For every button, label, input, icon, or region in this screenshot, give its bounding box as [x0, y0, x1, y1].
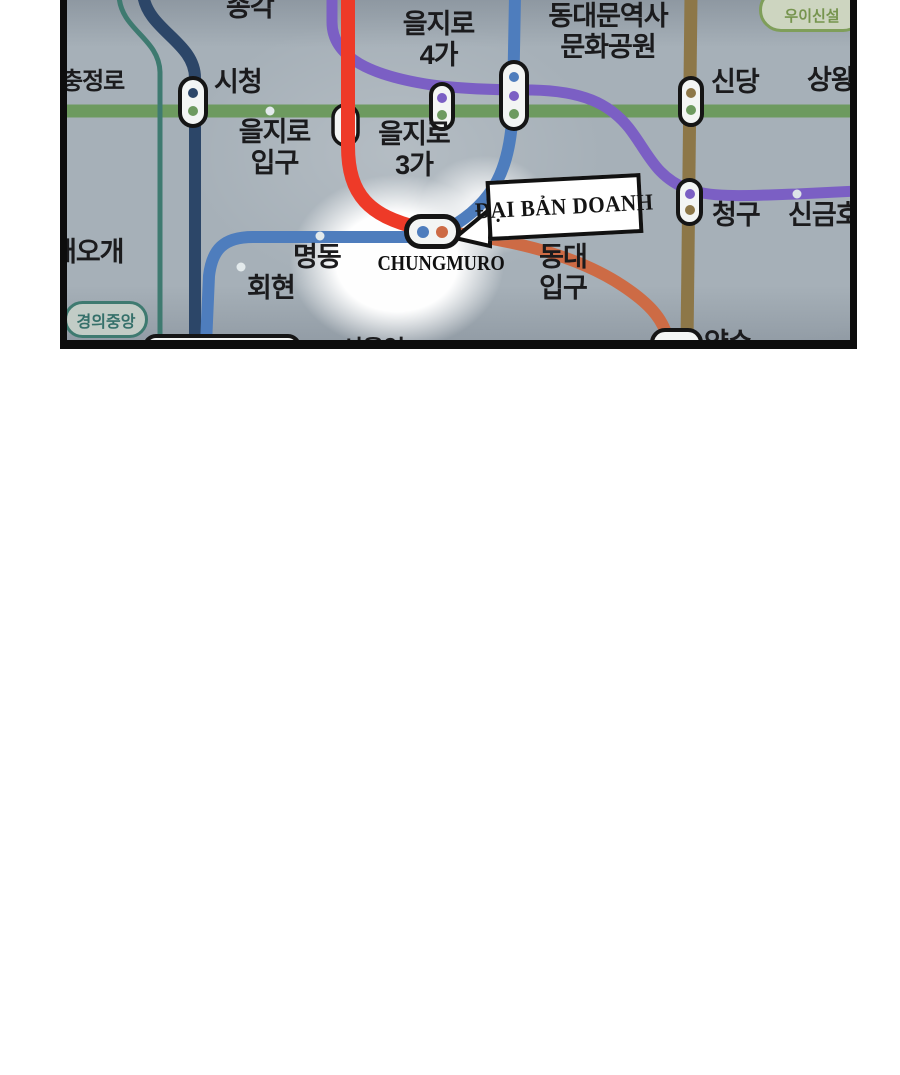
headquarters-callout-text: ĐẠI BẢN DOANH: [475, 189, 655, 224]
station-capsule-sindang: [678, 76, 704, 127]
station-capsule-yaksu: [650, 328, 703, 349]
gyeongui-jungang-line-badge: 경의중앙: [64, 301, 148, 338]
station-label-yaksu: 약수: [704, 328, 752, 349]
station-capsule-city-hall: [178, 76, 208, 128]
label-line: 입구: [227, 148, 322, 179]
line3-dot: [436, 226, 448, 238]
label-line: 을지로: [227, 117, 322, 148]
label-line: 을지로: [391, 9, 486, 40]
station-label-city-hall: 시청: [214, 67, 262, 98]
station-capsule-cheonggu: [676, 178, 703, 226]
station-label-cheonggu: 청구: [712, 200, 760, 231]
label-line: 3가: [369, 150, 459, 181]
gyeongui-jungang-line: [119, 0, 160, 340]
line4-dot: [509, 72, 519, 82]
subway-map-panel: 우이신설 경의중앙 종각 충정로 시청 을지로 입구 을지로 3가 을지로 4가…: [60, 0, 857, 349]
line6-dot: [686, 88, 696, 98]
station-label-singeumho: 신금호: [788, 200, 857, 231]
label-line: 동대: [530, 242, 596, 273]
line2-dot: [509, 109, 519, 119]
station-label-ddm-history-culture-park: 동대문역사 문화공원: [524, 1, 692, 63]
station-label-jonggak: 종각: [226, 0, 274, 23]
station-label-sangwangsimni: 상왕: [807, 65, 855, 96]
line2-dot: [188, 106, 198, 116]
line6-dot: [685, 205, 695, 215]
label-line: 문화공원: [524, 32, 692, 63]
station-label-sindang: 신당: [711, 67, 759, 98]
station-label-chungmuro-en: CHUNGMURO: [377, 251, 486, 276]
station-dot-euljiro-ipgu: [266, 107, 275, 116]
label-line: 4가: [391, 40, 486, 71]
station-capsule-chungmuro: [404, 214, 461, 249]
label-line: 동대문역사: [524, 1, 692, 32]
station-label-seoul-station: 서울역: [341, 334, 404, 349]
station-dot-hoehyeon: [237, 263, 246, 272]
line5-dot: [509, 91, 519, 101]
station-dot-line5-east: [793, 190, 802, 199]
line5-dot: [685, 189, 695, 199]
station-label-hoehyeon: 회현: [247, 273, 295, 304]
station-label-euljiro-4ga: 을지로 4가: [391, 9, 486, 71]
station-label-chungjeongno: 충정로: [61, 66, 124, 97]
station-label-euljiro-3ga: 을지로 3가: [369, 119, 459, 181]
ui-sinseol-line-badge: 우이신설: [759, 0, 857, 32]
line5-dot: [437, 93, 447, 103]
station-label-dongguk-univ: 동대 입구: [530, 242, 596, 304]
line2-dot: [686, 105, 696, 115]
headquarters-callout: ĐẠI BẢN DOANH: [486, 173, 644, 241]
station-dot-myeongdong: [316, 232, 325, 241]
label-line: 을지로: [369, 119, 459, 150]
line4-dot: [417, 226, 429, 238]
line1-dot: [188, 88, 198, 98]
label-line: 입구: [530, 273, 596, 304]
station-label-aeogae: 애오개: [60, 237, 124, 268]
station-label-euljiro-ipgu: 을지로 입구: [227, 117, 322, 179]
station-capsule-seoul-station: [143, 334, 301, 349]
station-label-myeongdong: 명동: [293, 242, 341, 273]
station-capsule-ddm-history-culture-park: [499, 60, 529, 131]
